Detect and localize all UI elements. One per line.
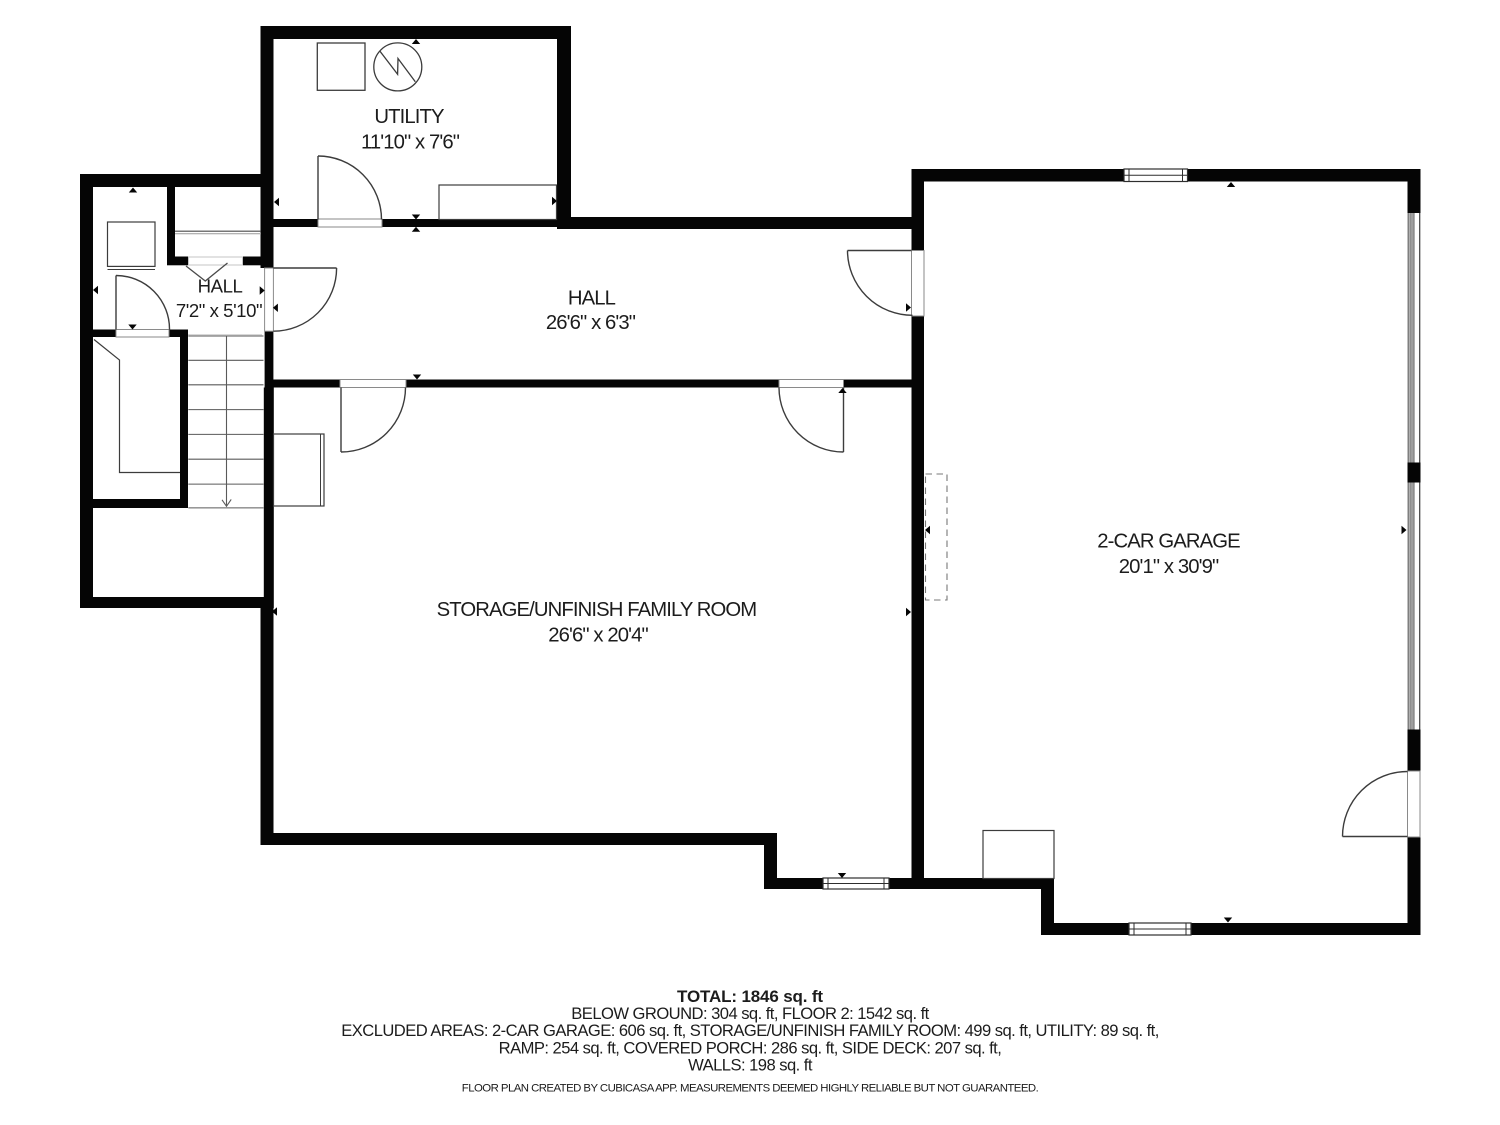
svg-text:FLOOR PLAN CREATED BY CUBICASA: FLOOR PLAN CREATED BY CUBICASA APP. MEAS…	[462, 1083, 1039, 1095]
svg-text:7'2" x 5'10": 7'2" x 5'10"	[176, 300, 262, 321]
svg-text:26'6" x 20'4": 26'6" x 20'4"	[548, 624, 648, 646]
svg-text:UTILITY: UTILITY	[374, 106, 445, 128]
svg-text:HALL: HALL	[568, 287, 616, 309]
svg-text:HALL: HALL	[198, 276, 243, 297]
svg-text:26'6" x 6'3": 26'6" x 6'3"	[546, 312, 636, 334]
svg-text:2-CAR GARAGE: 2-CAR GARAGE	[1097, 531, 1240, 553]
svg-text:WALLS: 198 sq. ft: WALLS: 198 sq. ft	[688, 1055, 813, 1074]
svg-text:STORAGE/UNFINISH FAMILY ROOM: STORAGE/UNFINISH FAMILY ROOM	[437, 599, 757, 621]
svg-text:20'1" x 30'9": 20'1" x 30'9"	[1119, 556, 1219, 578]
svg-text:11'10" x 7'6": 11'10" x 7'6"	[361, 131, 460, 153]
